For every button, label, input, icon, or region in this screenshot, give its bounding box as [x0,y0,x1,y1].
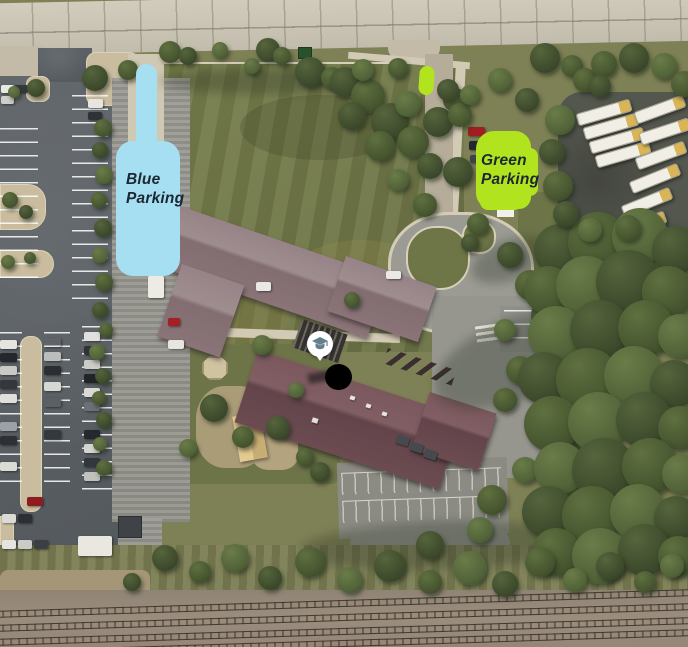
car [148,276,164,298]
car [0,353,17,362]
tree [232,426,254,448]
tree [99,323,113,337]
tree [123,573,141,591]
tree [92,391,106,405]
tree [530,43,560,73]
tree [95,368,111,384]
tree [553,201,579,227]
tree [82,65,108,91]
tree [338,102,366,130]
tree [288,382,304,398]
car [2,540,16,549]
tree [418,570,442,594]
tree [212,42,228,58]
car [84,332,100,341]
tree [244,58,260,74]
tree [543,171,573,201]
tree [95,166,113,184]
car [44,430,61,439]
tree [453,551,487,585]
tree [200,394,228,422]
tree [591,51,617,77]
tree [461,234,479,252]
tree [352,59,374,81]
tree [96,460,112,476]
blue-parking-label: Blue Parking [126,170,184,208]
car [44,382,61,391]
tree [295,547,325,577]
tree [437,79,459,101]
car [44,338,61,347]
car [34,540,48,549]
tree [8,86,20,98]
car [168,318,180,326]
tree [344,292,360,308]
tree [467,213,489,235]
tree [118,60,138,80]
car [0,394,17,403]
car [84,360,100,369]
green-parking-label: Green Parking [481,151,539,189]
tree [96,412,112,428]
small-green-marker[interactable] [418,66,435,96]
car [44,352,61,361]
blue-parking-overlay-neck[interactable] [136,64,157,150]
tree [1,255,15,269]
blue-parking-label-line2: Parking [126,189,184,208]
blue-parking-overlay[interactable] [116,141,180,276]
car [0,422,17,431]
tree [387,169,409,191]
tree [252,335,272,355]
tree [467,517,493,543]
green-parking-label-line2: Parking [481,170,539,189]
car [18,540,32,549]
tree [19,205,33,219]
tree [615,215,641,241]
tree [24,252,36,264]
marker-pointer [315,354,325,361]
tree [589,75,611,97]
tree [93,437,107,451]
tree [27,79,45,97]
graduation-cap-icon [312,337,328,351]
car [88,99,103,108]
tree [477,485,507,515]
tree [365,131,395,161]
tree [273,47,291,65]
tree [2,192,18,208]
tree [488,68,512,92]
tree [492,571,518,597]
tree [152,545,178,571]
car [0,380,17,389]
tree [179,47,197,65]
gazebo [202,356,228,380]
tree [619,43,649,73]
tree [525,547,555,577]
dumpster [118,516,142,538]
tree [221,544,249,572]
tree [493,388,517,412]
tree [634,571,656,593]
tree [578,218,602,242]
road [0,0,688,55]
tree [443,157,473,187]
railroad-corridor [0,590,688,647]
tree [563,568,587,592]
tree [413,193,437,217]
tree [660,554,684,578]
tree [295,57,325,87]
tree [266,416,290,440]
car [27,497,43,506]
tree [179,439,197,457]
green-parking-overlay-foot[interactable] [480,194,522,210]
tree [515,88,539,112]
median-island [20,336,42,512]
tree [448,103,472,127]
tree [91,192,107,208]
car [256,282,271,291]
blue-parking-label-line1: Blue [126,170,184,189]
tree [89,344,105,360]
aerial-campus-map: Blue Parking Green Parking [0,0,688,647]
tree [92,247,108,263]
black-redaction-dot [325,364,352,390]
tree [388,58,408,78]
tree [497,242,523,268]
tree [460,85,480,105]
car [44,398,61,407]
tree [94,119,112,137]
tree [189,561,211,583]
tree [658,314,688,358]
car [0,366,17,375]
tree [596,552,624,580]
tree [159,41,181,63]
tree [494,319,516,341]
green-parking-label-line1: Green [481,151,539,170]
tree [92,142,108,158]
car [44,366,61,375]
car [386,271,401,279]
car [2,514,16,523]
car [0,462,17,471]
tree [395,91,421,117]
tree [310,462,330,482]
car [0,436,17,445]
tree [545,105,575,135]
tree [416,531,444,559]
car [0,340,17,349]
tree [417,153,443,179]
tree [374,550,406,582]
tree [296,448,314,466]
tree [94,219,112,237]
tree [539,139,565,165]
tree [258,566,282,590]
tree [337,567,363,593]
car [18,514,32,523]
tree [95,273,113,291]
car [168,340,184,349]
tree [92,302,108,318]
car [78,536,112,556]
